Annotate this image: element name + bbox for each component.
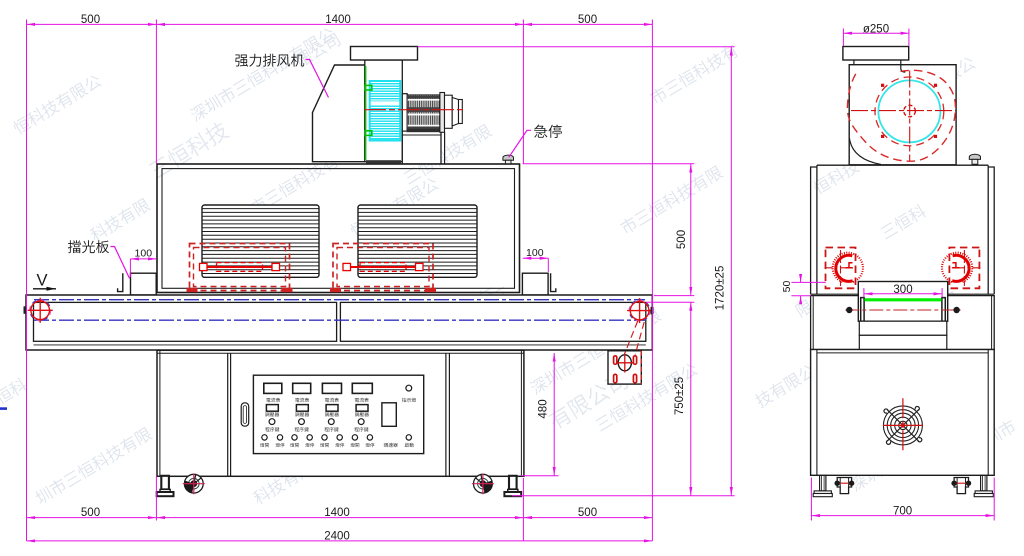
svg-text:2400: 2400 — [324, 531, 350, 543]
svg-text:100: 100 — [135, 248, 153, 260]
svg-text:1720±25: 1720±25 — [715, 266, 727, 311]
svg-text:1400: 1400 — [324, 507, 350, 519]
svg-text:ø250: ø250 — [863, 24, 889, 36]
svg-text:V: V — [36, 272, 47, 290]
svg-text:100: 100 — [526, 247, 544, 259]
svg-text:500: 500 — [578, 507, 597, 519]
svg-text:750±25: 750±25 — [674, 377, 686, 415]
svg-text:1400: 1400 — [325, 14, 351, 26]
svg-text:300: 300 — [893, 284, 912, 296]
svg-text:480: 480 — [538, 399, 550, 418]
svg-text:500: 500 — [81, 507, 100, 519]
svg-text:50: 50 — [781, 281, 793, 293]
svg-text:500: 500 — [81, 14, 100, 26]
svg-text:700: 700 — [893, 505, 912, 517]
svg-text:500: 500 — [676, 230, 688, 249]
svg-text:500: 500 — [578, 14, 597, 26]
